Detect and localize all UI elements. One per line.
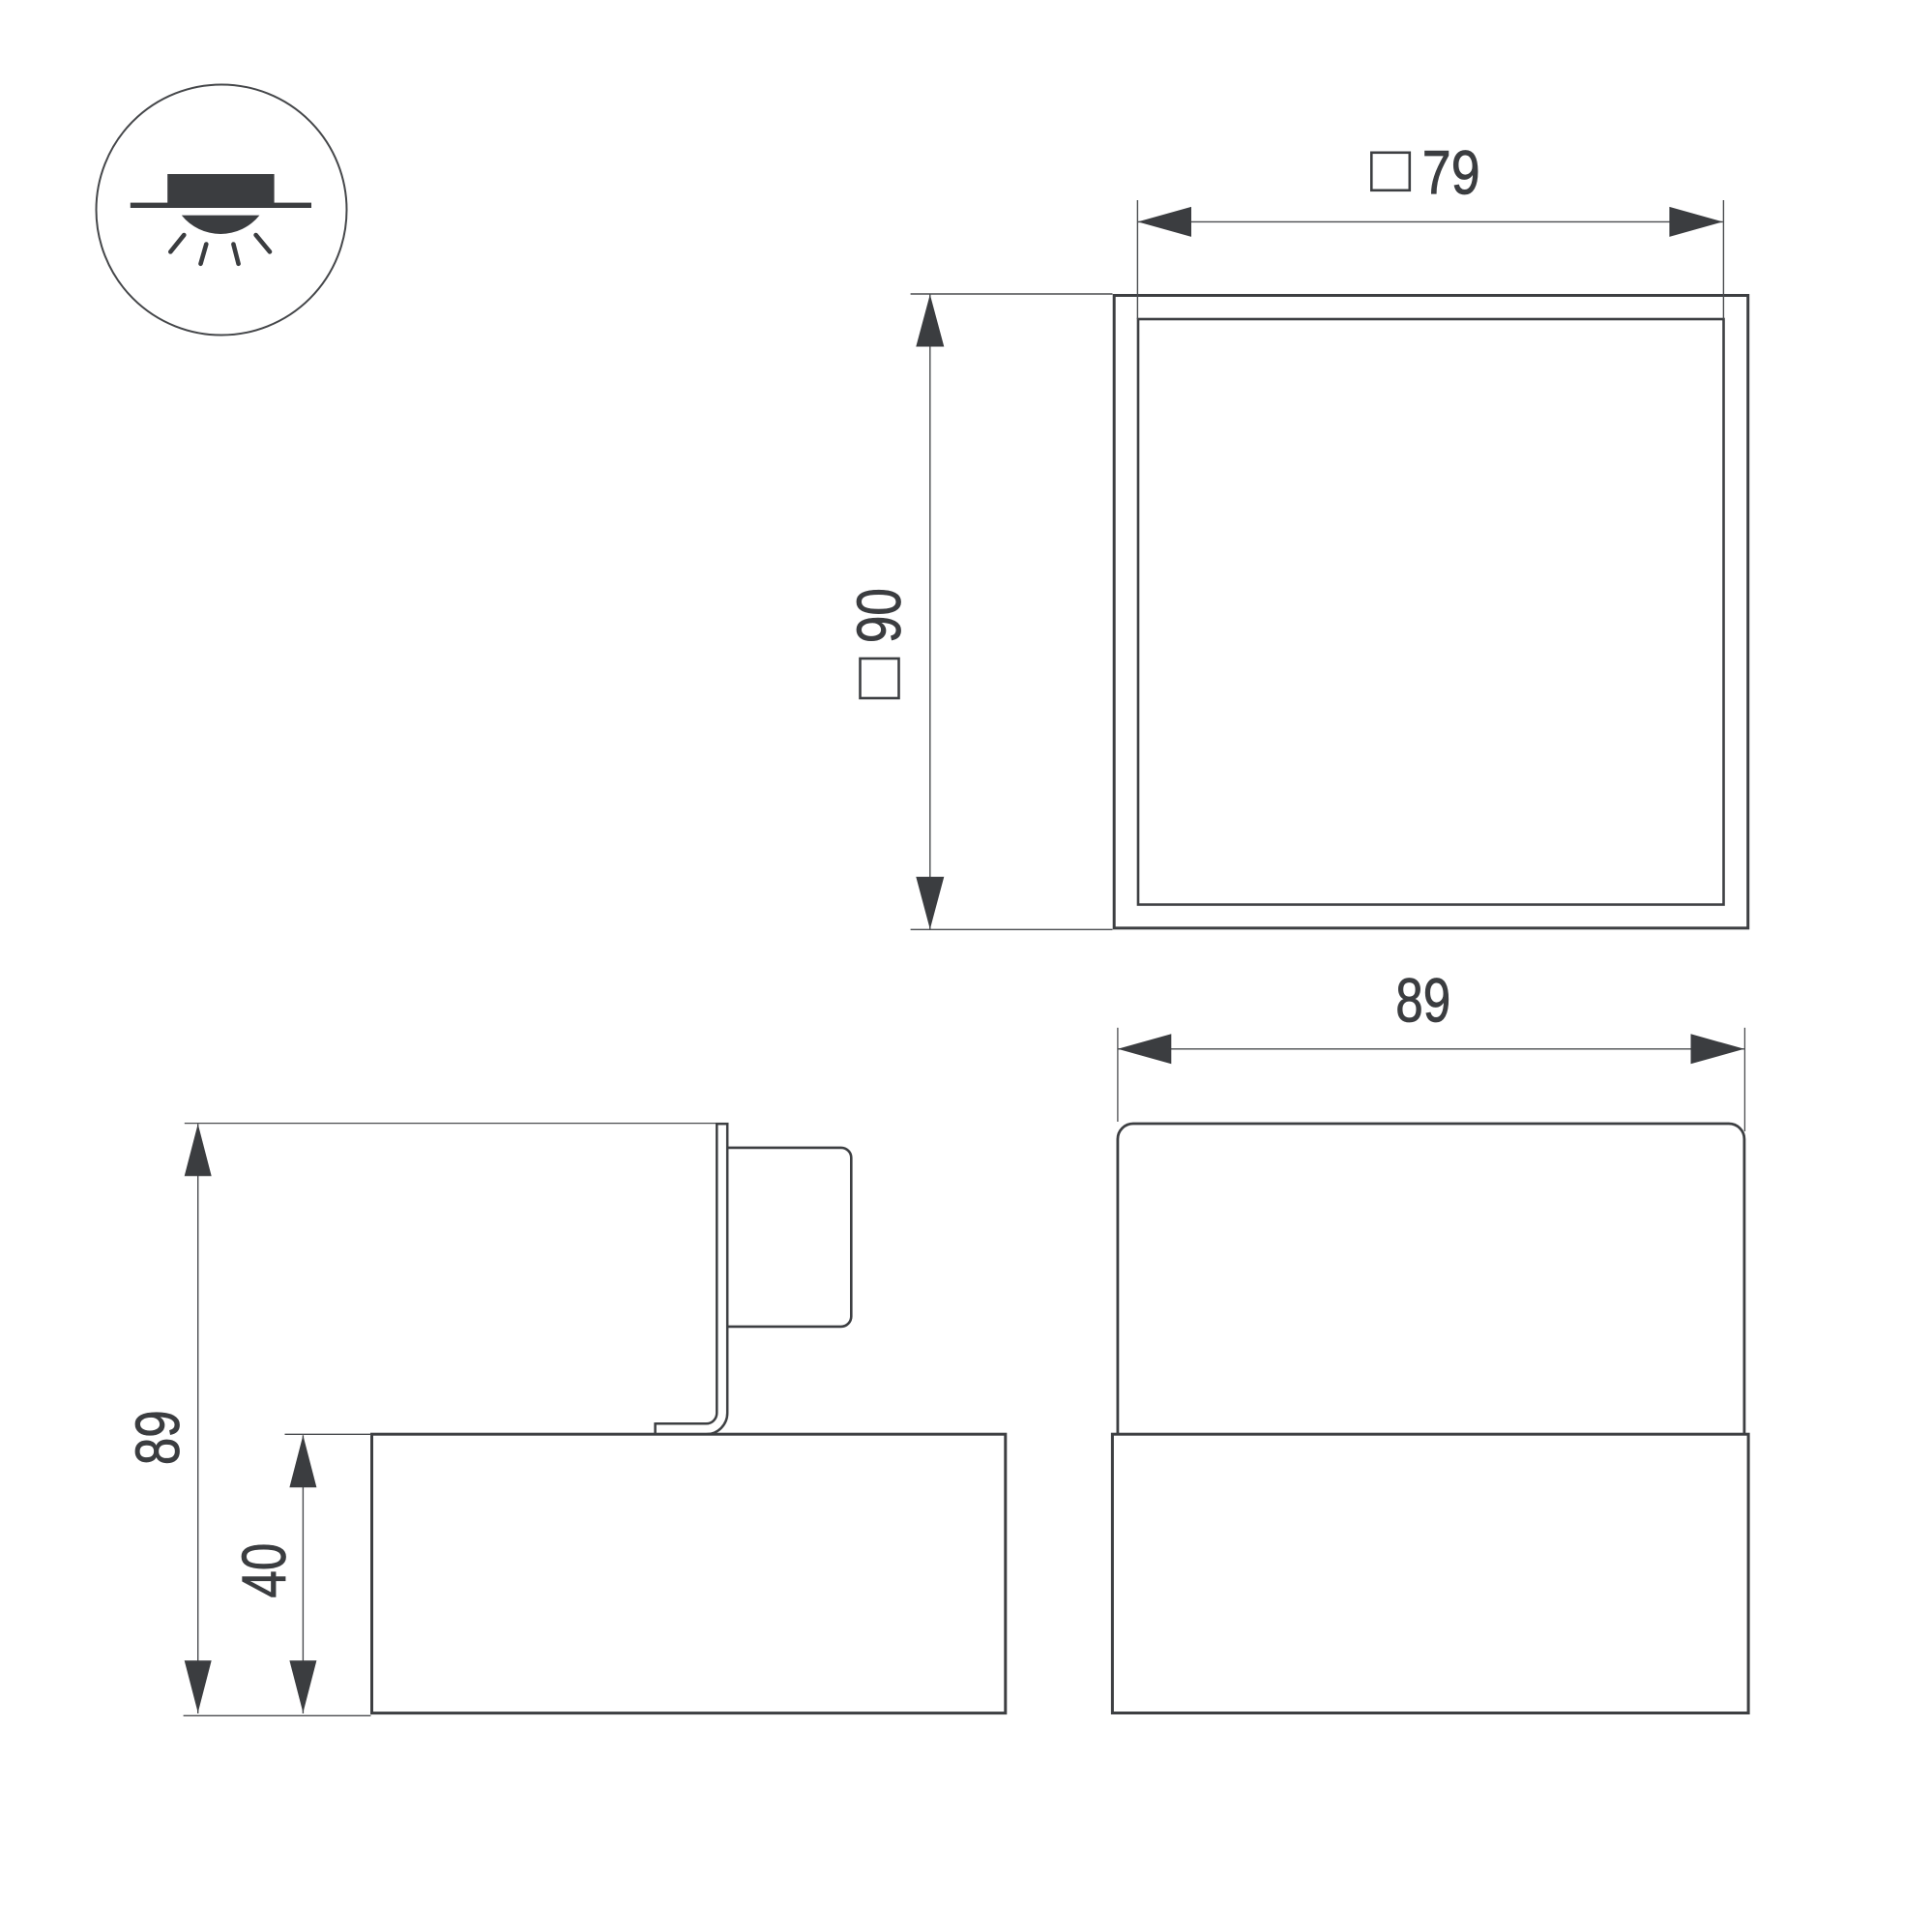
svg-text:89: 89 bbox=[125, 1410, 193, 1465]
svg-text:40: 40 bbox=[231, 1543, 300, 1598]
svg-text:90: 90 bbox=[846, 588, 915, 643]
svg-text:79: 79 bbox=[1422, 137, 1480, 208]
svg-text:89: 89 bbox=[1395, 967, 1450, 1036]
